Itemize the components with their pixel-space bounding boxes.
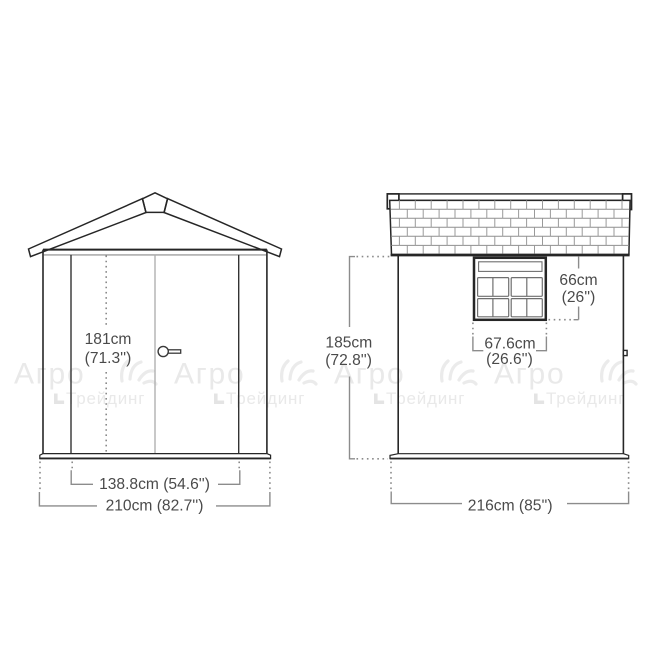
svg-text:138.8cm (54.6''): 138.8cm (54.6'') xyxy=(99,476,210,493)
svg-text:(26''): (26'') xyxy=(562,289,596,306)
svg-text:(72.8''): (72.8'') xyxy=(325,352,372,369)
svg-text:216cm (85''): 216cm (85'') xyxy=(468,497,553,514)
svg-text:66cm: 66cm xyxy=(559,272,597,289)
svg-text:(26.6''): (26.6'') xyxy=(486,351,533,368)
svg-text:181cm: 181cm xyxy=(85,331,132,348)
svg-text:(71.3''): (71.3'') xyxy=(85,350,132,367)
svg-text:185cm: 185cm xyxy=(325,335,372,352)
svg-text:210cm (82.7''): 210cm (82.7'') xyxy=(106,498,204,515)
svg-text:Агро: Агро xyxy=(14,358,86,391)
